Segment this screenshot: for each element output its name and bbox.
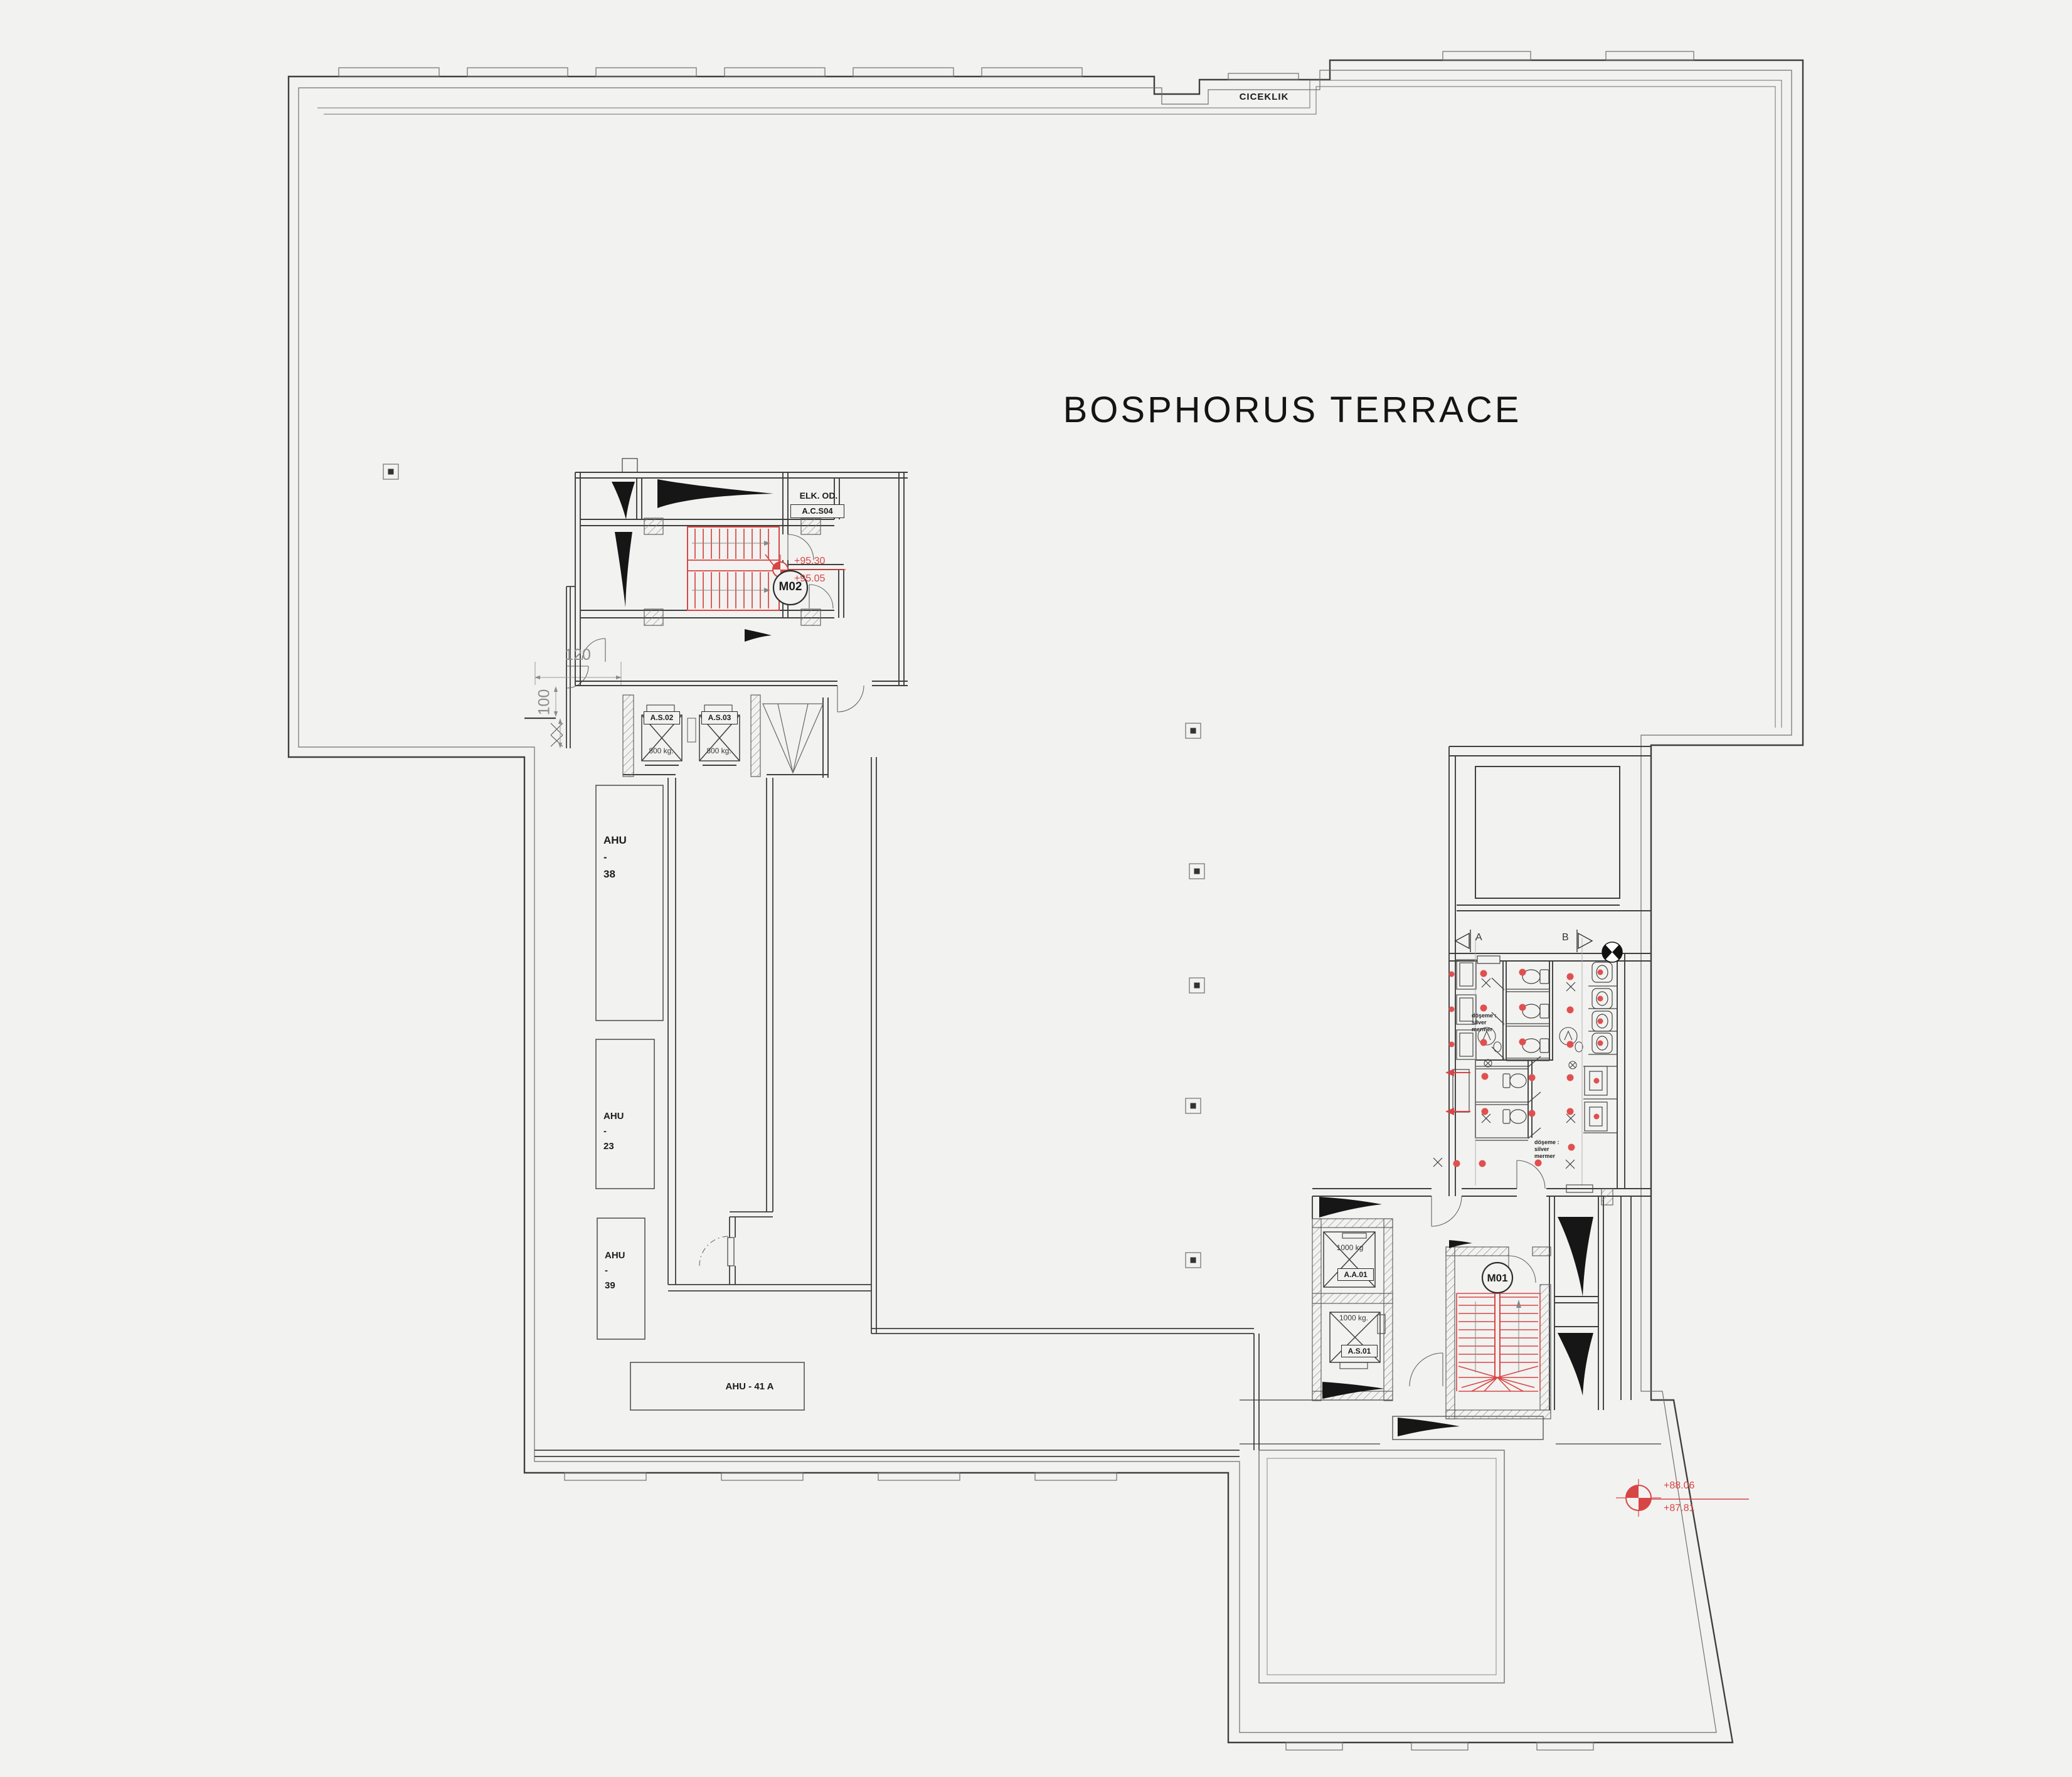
wall-hatch-piers xyxy=(623,518,821,777)
stair-m02-icon xyxy=(688,527,780,610)
wall-hatch-pier xyxy=(1602,1189,1613,1205)
stair-void-icon xyxy=(763,704,823,773)
stair-guide-lines-m01 xyxy=(1475,1300,1521,1372)
ahu-23-line1: AHU xyxy=(603,1109,624,1124)
door-swing-icon xyxy=(699,1236,730,1266)
finish-note-1-line3: mermer xyxy=(1472,1026,1497,1033)
lift-divider xyxy=(688,718,696,742)
wc-toilet-icons xyxy=(1503,970,1549,1123)
wc-sink-icons xyxy=(1453,960,1476,1112)
right-wing-walls xyxy=(1449,746,1651,1196)
lift-as01-id: A.S.01 xyxy=(1341,1345,1378,1357)
section-label-a: A xyxy=(1475,932,1482,943)
bottom-terrace xyxy=(1259,1450,1504,1683)
floor-plan-drawing xyxy=(0,0,2072,1777)
floor-plan-page: CICEKLIK BOSPHORUS TERRACE ELK. OD. A.C.… xyxy=(0,0,2072,1777)
ahu-39-label: AHU - 39 xyxy=(605,1248,625,1293)
planter-tabs xyxy=(339,51,1694,1750)
level-m02-upper: +95.30 xyxy=(794,556,825,567)
level-terrace-upper: +88.06 xyxy=(1664,1480,1694,1492)
corridor-walls xyxy=(524,586,1259,1456)
elk-room-code: A.C.S04 xyxy=(790,504,844,518)
ahu-23-line2: - xyxy=(603,1124,624,1139)
ahu-23-label: AHU - 23 xyxy=(603,1109,624,1154)
room-tag-m01: M01 xyxy=(1476,1272,1519,1285)
terrace-outline xyxy=(289,51,1803,1750)
level-terrace-lower: +87.81 xyxy=(1664,1503,1694,1514)
finish-note-2: döşeme : silver mermer xyxy=(1534,1139,1559,1160)
lift-as03-capacity: 800 kg. xyxy=(699,746,739,755)
lift-as03-id: A.S.03 xyxy=(701,711,738,724)
shower-icons xyxy=(1478,1027,1583,1069)
ahu-23-line3: 23 xyxy=(603,1139,624,1154)
lift-aa01-capacity: 1000 kg xyxy=(1325,1243,1375,1252)
page-title: BOSPHORUS TERRACE xyxy=(1035,389,1549,431)
wc-urinal-icons xyxy=(1585,962,1612,1131)
ahu-38-line2: - xyxy=(603,849,627,866)
finish-note-2-line1: döşeme : xyxy=(1534,1139,1559,1146)
finish-note-2-line2: silver xyxy=(1534,1146,1559,1153)
ahu-41a-label: AHU - 41 A xyxy=(681,1381,819,1392)
lift-as01-capacity: 1000 kg. xyxy=(1329,1313,1379,1322)
finish-note-1-line2: silver xyxy=(1472,1019,1497,1026)
ahu-38-label: AHU - 38 xyxy=(603,832,627,883)
ahu-38-line1: AHU xyxy=(603,832,627,849)
dimension-100: 100 xyxy=(536,677,554,728)
finish-note-2-line3: mermer xyxy=(1534,1153,1559,1160)
lift-aa01-id: A.A.01 xyxy=(1337,1268,1374,1281)
datum-target-icon xyxy=(1602,942,1623,962)
elk-room-label: ELK. OD. xyxy=(787,491,850,501)
planter-label: CICEKLIK xyxy=(1217,92,1311,102)
section-marker-b xyxy=(1577,930,1592,1186)
ahu-39-line2: - xyxy=(605,1263,625,1278)
lift-as02-capacity: 800 kg. xyxy=(641,746,681,755)
ahu-38-line3: 38 xyxy=(603,866,627,883)
finish-note-1-line1: döşeme : xyxy=(1472,1012,1497,1019)
stair-m01-icon xyxy=(1457,1293,1540,1391)
ahu-38-unit xyxy=(596,785,663,1021)
section-marker-a xyxy=(1455,930,1475,1186)
dimension-120: 120 xyxy=(546,646,609,664)
finish-note-1: döşeme : silver mermer xyxy=(1472,1012,1497,1033)
ahu-39-line1: AHU xyxy=(605,1248,625,1263)
section-label-b: B xyxy=(1562,932,1569,943)
lift-as02-id: A.S.02 xyxy=(644,711,680,724)
level-m02-lower: +95.05 xyxy=(794,573,825,585)
sprinkler-dot-icons xyxy=(1449,969,1603,1167)
ahu-39-line3: 39 xyxy=(605,1278,625,1293)
